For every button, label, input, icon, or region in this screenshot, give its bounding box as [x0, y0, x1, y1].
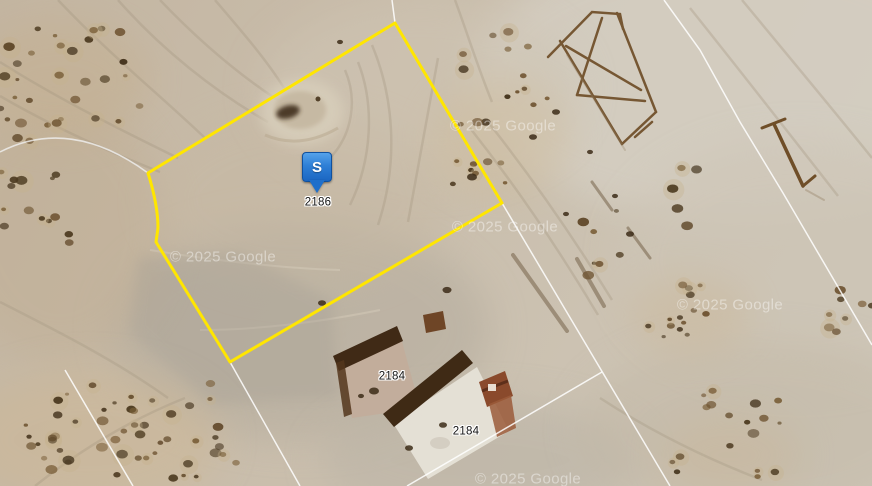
marker-tail	[309, 180, 325, 193]
marker-label: S	[312, 159, 322, 176]
map-attribution-watermark: © 2025 Google	[677, 297, 783, 314]
parcel-overlay-layer	[0, 0, 872, 486]
parcel-label-2186: 2186	[305, 197, 331, 209]
map-attribution-watermark: © 2025 Google	[450, 118, 556, 135]
map-attribution-watermark: © 2025 Google	[452, 219, 558, 236]
map-attribution-watermark: © 2025 Google	[475, 471, 581, 486]
parcel-label-2184: 2184	[453, 426, 479, 438]
property-marker-pin[interactable]: S	[302, 152, 332, 196]
marker-body: S	[302, 152, 332, 182]
map-attribution-watermark: © 2025 Google	[170, 249, 276, 266]
map-canvas[interactable]: S 218621842184 © 2025 Google© 2025 Googl…	[0, 0, 872, 486]
parcel-label-2184: 2184	[379, 371, 405, 383]
